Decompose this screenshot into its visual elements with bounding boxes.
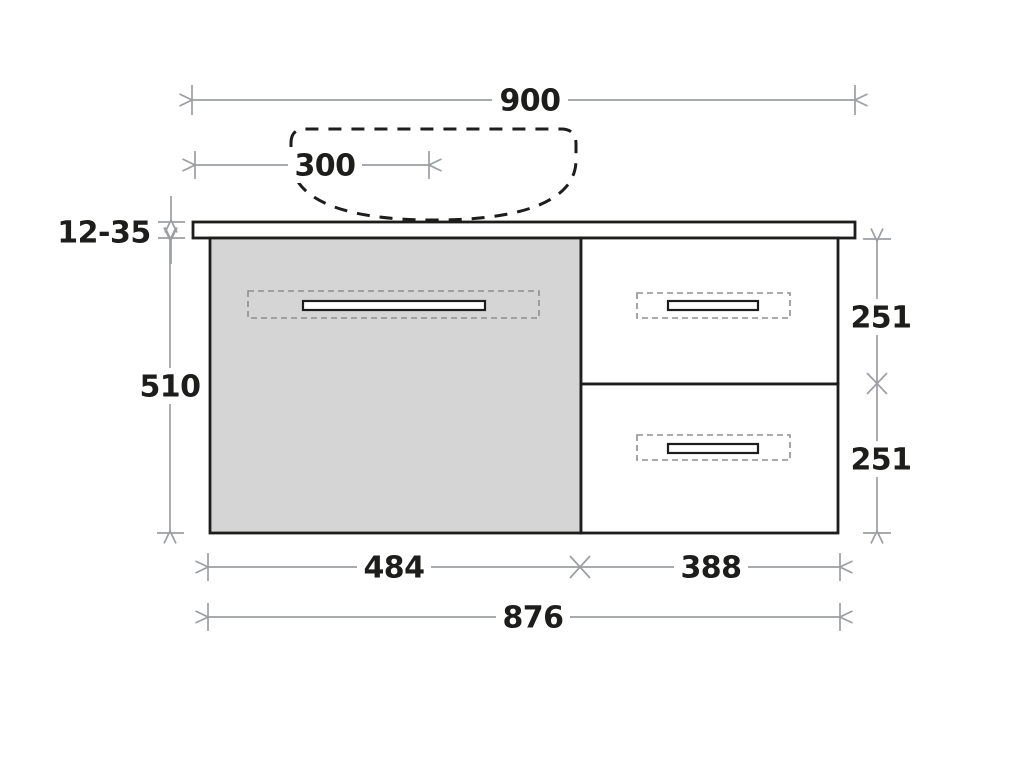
drawer-bottom-handle bbox=[668, 444, 758, 453]
dim-label-carcass-width: 876 bbox=[502, 601, 563, 636]
vanity-cabinet bbox=[193, 129, 855, 533]
dim-label-top-drawer-height: 251 bbox=[850, 301, 911, 336]
dim-label-left-section-width: 484 bbox=[363, 551, 424, 586]
dim-overall-width: 900 bbox=[192, 82, 855, 119]
dim-label-overall-width: 900 bbox=[499, 84, 560, 119]
dim-label-basin-offset: 300 bbox=[294, 149, 355, 184]
dim-carcass-width: 876 bbox=[208, 599, 840, 636]
dim-label-top-thickness: 12-35 bbox=[57, 216, 150, 251]
dim-bottom-drawer-height: 251 bbox=[846, 384, 916, 533]
dim-label-bottom-drawer-height: 251 bbox=[850, 443, 911, 478]
door-panel bbox=[210, 238, 581, 533]
dim-label-right-section-width: 388 bbox=[680, 551, 741, 586]
drawing-canvas: 900 300 12-35 510 bbox=[0, 0, 1024, 769]
countertop bbox=[193, 222, 855, 238]
vanity-dimension-drawing: 900 300 12-35 510 bbox=[0, 0, 1024, 769]
door-handle bbox=[303, 301, 485, 310]
drawer-top-handle bbox=[668, 301, 758, 310]
drawer-bottom bbox=[581, 384, 838, 533]
dim-basin-offset: 300 bbox=[195, 147, 429, 184]
dim-body-height: 510 bbox=[133, 240, 207, 533]
dim-section-widths: 484 388 bbox=[208, 549, 840, 586]
dim-top-thickness: 12-35 bbox=[57, 196, 185, 264]
dim-top-drawer-height: 251 bbox=[846, 239, 916, 394]
dim-label-body-height: 510 bbox=[139, 370, 200, 405]
